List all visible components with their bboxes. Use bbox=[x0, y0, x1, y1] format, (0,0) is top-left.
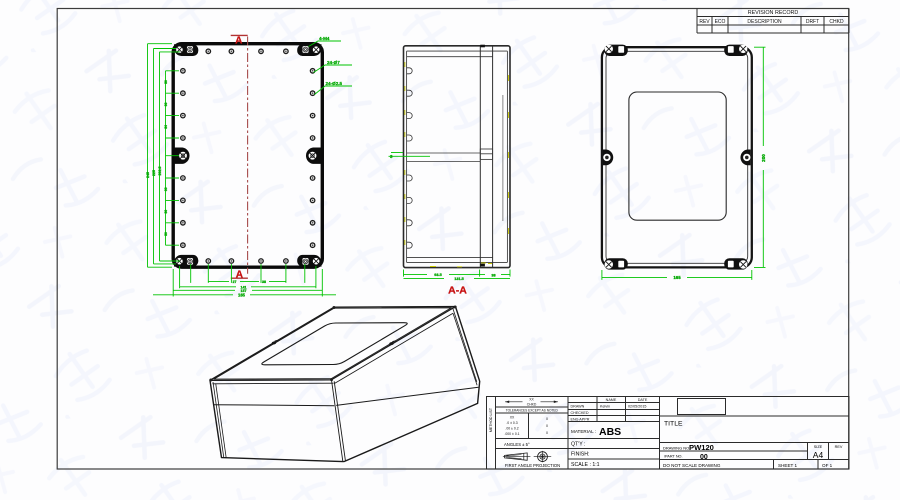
svg-text:ECO: ECO bbox=[715, 19, 726, 25]
svg-text:Kelvin: Kelvin bbox=[600, 405, 610, 409]
svg-text:NAME: NAME bbox=[606, 398, 617, 402]
svg-text:QT'Y :: QT'Y : bbox=[571, 442, 585, 448]
svg-text:CHECKED: CHECKED bbox=[571, 411, 589, 415]
svg-text:SIZE: SIZE bbox=[814, 445, 823, 449]
svg-text:DATE: DATE bbox=[638, 398, 648, 402]
svg-text:OF 1: OF 1 bbox=[822, 463, 833, 468]
svg-text:165: 165 bbox=[238, 293, 246, 298]
svg-text:38: 38 bbox=[262, 280, 266, 284]
svg-text:30: 30 bbox=[164, 80, 168, 84]
svg-text:DO NOT SCALE DRAWING: DO NOT SCALE DRAWING bbox=[663, 463, 721, 468]
svg-text:DRAWING NO.: DRAWING NO. bbox=[663, 445, 690, 450]
svg-text:REVISION RECORD: REVISION RECORD bbox=[748, 10, 799, 16]
svg-text:00: 00 bbox=[700, 454, 708, 461]
svg-text:.0 ± 0.3: .0 ± 0.3 bbox=[506, 421, 517, 425]
svg-text:38: 38 bbox=[491, 273, 495, 277]
svg-text:XX: XX bbox=[510, 415, 515, 419]
svg-text:DRFT: DRFT bbox=[806, 19, 819, 25]
svg-text:ANGLES ± 5°: ANGLES ± 5° bbox=[504, 442, 530, 447]
svg-text:30: 30 bbox=[164, 232, 168, 236]
svg-text:TITLE: TITLE bbox=[664, 421, 683, 428]
svg-text:93.5: 93.5 bbox=[434, 273, 441, 277]
svg-text:METHOD LIST: METHOD LIST bbox=[489, 407, 493, 432]
svg-text:/PART NO.: /PART NO. bbox=[664, 455, 683, 459]
svg-text:202.5: 202.5 bbox=[158, 167, 162, 176]
svg-text:30: 30 bbox=[164, 210, 168, 214]
svg-text:ABS: ABS bbox=[599, 426, 621, 438]
svg-text:A4: A4 bbox=[813, 450, 824, 460]
svg-text:CHKD: CHKD bbox=[527, 402, 537, 406]
svg-text:A: A bbox=[235, 35, 242, 46]
svg-text:MATERIAL :: MATERIAL : bbox=[571, 429, 596, 434]
svg-text:CHKD: CHKD bbox=[829, 19, 844, 25]
svg-text:.000 ± 0.1: .000 ± 0.1 bbox=[504, 432, 519, 436]
svg-text:4-M4: 4-M4 bbox=[319, 36, 330, 41]
svg-text:DRAWN: DRAWN bbox=[571, 405, 585, 409]
svg-text:02/05/2015: 02/05/2015 bbox=[628, 405, 646, 409]
svg-text:30: 30 bbox=[164, 125, 168, 129]
svg-text:225: 225 bbox=[152, 170, 156, 176]
svg-text:REV: REV bbox=[835, 445, 843, 449]
svg-text:131.5: 131.5 bbox=[454, 277, 464, 281]
svg-text:165: 165 bbox=[673, 275, 681, 280]
svg-text:24-Ø2.5: 24-Ø2.5 bbox=[326, 81, 343, 86]
svg-text:PW120: PW120 bbox=[689, 443, 714, 452]
svg-text:30: 30 bbox=[164, 102, 168, 106]
svg-text:ENG APPR: ENG APPR bbox=[571, 417, 590, 421]
svg-text:27: 27 bbox=[233, 280, 237, 284]
svg-text:245: 245 bbox=[146, 172, 150, 178]
svg-text:24-Ø7: 24-Ø7 bbox=[327, 60, 340, 65]
svg-text:FIRST ANGLE PROJECTION: FIRST ANGLE PROJECTION bbox=[505, 463, 560, 468]
svg-text:TOLERANCES EXCEPT AS NOTED: TOLERANCES EXCEPT AS NOTED bbox=[506, 408, 559, 412]
svg-text:30: 30 bbox=[164, 187, 168, 191]
svg-text:REV: REV bbox=[699, 19, 710, 25]
svg-text:200: 200 bbox=[761, 154, 766, 162]
svg-text:FINISH:: FINISH: bbox=[571, 452, 589, 458]
svg-text:A-A: A-A bbox=[448, 285, 467, 297]
svg-text:A: A bbox=[236, 269, 243, 280]
svg-text:SCALE : 1:1: SCALE : 1:1 bbox=[571, 462, 600, 468]
svg-text:XX: XX bbox=[529, 398, 534, 402]
svg-text:DESCRIPTION: DESCRIPTION bbox=[747, 19, 782, 25]
svg-text:SHEET 1: SHEET 1 bbox=[778, 463, 798, 468]
svg-text:.00 ± 0.2: .00 ± 0.2 bbox=[505, 427, 518, 431]
